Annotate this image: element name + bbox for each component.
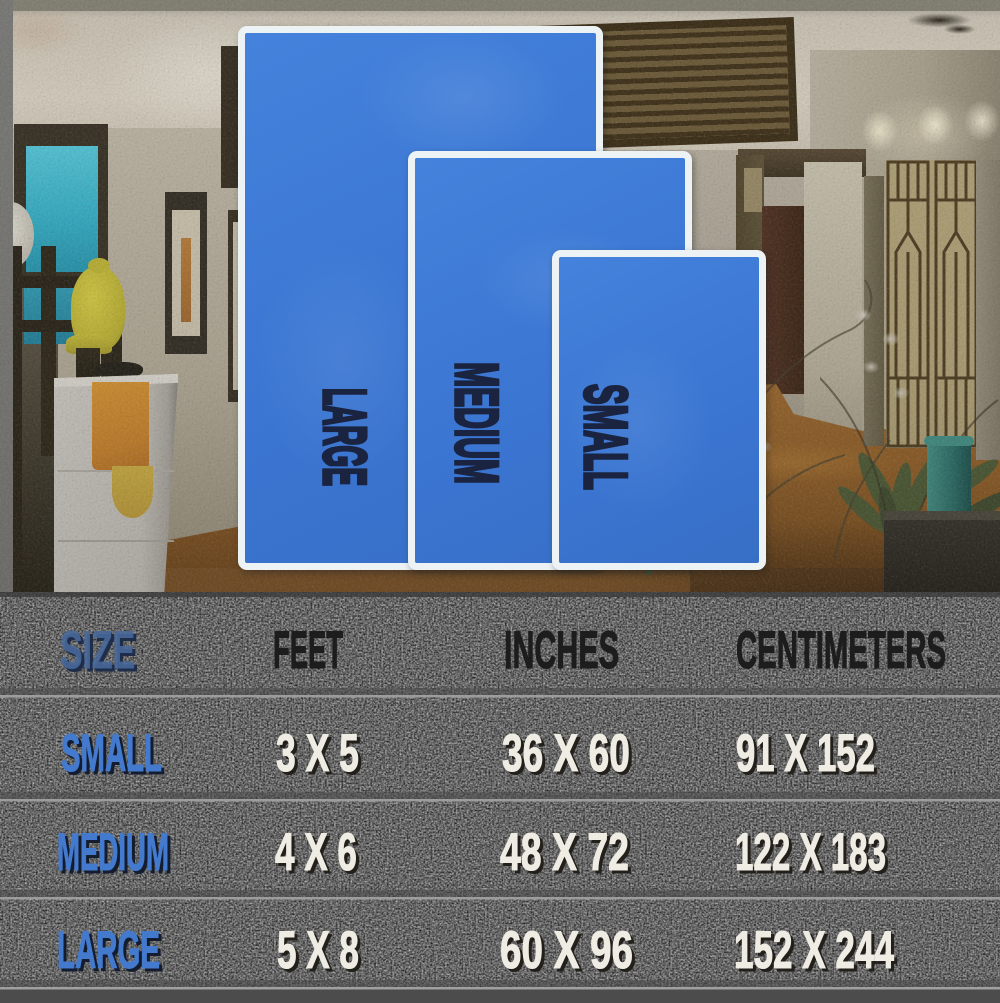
svg-text:SMALL: SMALL <box>571 384 638 490</box>
svg-text:MEDIUM: MEDIUM <box>57 822 169 881</box>
svg-text:3 X 5: 3 X 5 <box>276 723 359 783</box>
svg-text:CENTIMETERS: CENTIMETERS <box>736 621 946 680</box>
svg-text:SMALL: SMALL <box>61 724 162 783</box>
svg-text:LARGE: LARGE <box>311 388 378 486</box>
svg-text:91 X 152: 91 X 152 <box>736 724 875 783</box>
svg-text:FEET: FEET <box>273 620 343 679</box>
svg-text:LARGE: LARGE <box>57 921 160 980</box>
svg-text:36 X 60: 36 X 60 <box>502 723 630 782</box>
svg-text:INCHES: INCHES <box>504 621 619 680</box>
svg-text:152 X 244: 152 X 244 <box>734 920 894 980</box>
svg-text:5 X 8: 5 X 8 <box>277 920 359 980</box>
svg-text:MEDIUM: MEDIUM <box>442 362 509 484</box>
svg-text:60 X 96: 60 X 96 <box>500 920 633 979</box>
svg-text:48 X 72: 48 X 72 <box>500 821 629 881</box>
svg-text:122 X 183: 122 X 183 <box>735 823 886 882</box>
svg-text:SIZE: SIZE <box>60 621 135 679</box>
svg-text:4 X 6: 4 X 6 <box>275 822 357 882</box>
